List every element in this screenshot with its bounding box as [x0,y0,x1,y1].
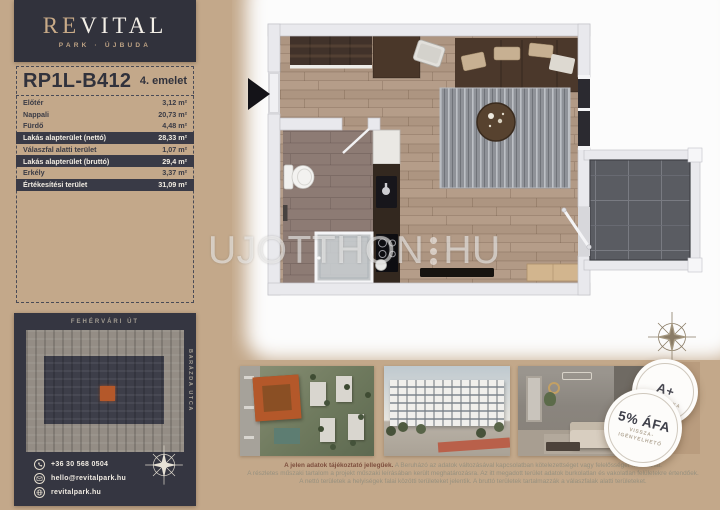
wardrobe [290,36,372,69]
area-table: Előtér3,12 m² Nappali20,73 m² Fürdő4,48 … [16,97,194,191]
interior-table [546,442,580,451]
street-label-right: BARÁZDA UTCA [187,349,193,412]
highlighted-unit [100,386,115,401]
unit-code: RP1L-B412 [23,70,131,93]
row-value: 1,07 m² [162,145,187,154]
row-value: 28,33 m² [158,133,187,142]
disclaimer-line-2: A részletes műszaki tartalom a projekt m… [238,470,708,478]
balcony-floor [590,160,690,260]
contact-email[interactable]: hello@revitalpark.hu [34,471,126,485]
brand-subtitle: PARK · ÚJBUDA [59,42,151,49]
aerial-building [310,382,326,406]
table-row: Előtér3,12 m² [16,97,194,109]
aerial-court [274,428,300,444]
disclaimer-lead: A jelen adatok tájékoztató jellegűek. [284,462,393,469]
row-label: Előtér [23,98,43,107]
table-row-highlight: Lakás alapterület (bruttó)29,4 m² [16,155,194,167]
table-row: Erkély3,37 m² [16,167,194,179]
row-value: 31,09 m² [158,180,187,189]
exterior-trees [398,422,408,432]
row-value: 20,73 m² [158,110,187,119]
floor-plan-area [232,0,720,360]
kitchen [373,130,400,283]
coffee-table [477,103,515,141]
mail-icon [34,473,45,484]
unit-header: RP1L-B412 4. emelet [16,67,194,96]
exterior-building [390,380,504,426]
balcony-window [578,75,590,150]
exterior-path [438,438,510,453]
table-row-highlight: Lakás alapterület (nettó)28,33 m² [16,132,194,144]
aerial-trees [310,374,316,380]
interior-lamp [562,372,592,380]
street-label-top: FEHÉRVÁRI ÚT [14,319,196,325]
table-row: Fürdő4,48 m² [16,120,194,132]
brand-name: REVITAL [43,14,168,37]
radiator [283,205,288,221]
row-label: Erkély [23,168,45,177]
compass-icon [646,309,698,365]
contact-phone[interactable]: +36 30 568 0504 [34,457,126,471]
tv-console [420,268,494,277]
brand-logo: REVITAL PARK · ÚJBUDA [14,0,196,62]
photo-exterior [384,366,510,456]
row-label: Értékesítési terület [23,180,87,189]
row-value: 3,12 m² [162,98,187,107]
interior-door [526,376,542,422]
contact-list: +36 30 568 0504 hello@revitalpark.hu rev… [34,457,126,499]
row-label: Válaszfal alatti terület [23,145,97,154]
shower [316,233,372,282]
toilet [284,165,314,189]
table-row: Válaszfal alatti terület1,07 m² [16,144,194,156]
aerial-building [336,376,352,402]
row-value: 29,4 m² [162,157,187,166]
website-url: revitalpark.hu [51,489,101,496]
table-row: Nappali20,73 m² [16,109,194,121]
aerial-building [320,418,335,442]
aerial-building [348,414,364,440]
phone-icon [34,459,45,470]
table-row-highlight: Értékesítési terület31,09 m² [16,179,194,191]
site-panel: FEHÉRVÁRI ÚT BARÁZDA UTCA +36 30 568 050… [14,313,196,506]
floor-plan [232,0,720,360]
brochure-page: UJOTTHON HU REVITAL PARK · ÚJBUDA RP1L-B… [0,0,720,510]
row-label: Nappali [23,110,49,119]
interior-plant [544,392,556,406]
row-value: 4,48 m² [162,121,187,130]
row-value: 3,37 m² [162,168,187,177]
contact-website[interactable]: revitalpark.hu [34,485,126,499]
aerial-highlighted-building [253,374,302,421]
row-label: Fürdő [23,121,43,130]
vat-badge: 5% ÁFA VISSZA- IGÉNYELHETŐ [604,389,682,467]
email-address: hello@revitalpark.hu [51,475,126,482]
row-label: Lakás alapterület (bruttó) [23,157,109,166]
row-label: Lakás alapterület (nettó) [23,133,106,142]
compass-icon-white [143,443,185,487]
photo-aerial [240,366,374,456]
sideboard [527,264,580,281]
globe-icon [34,487,45,498]
floor-label: 4. emelet [140,75,187,87]
disclaimer-line-3: A nettó területek a helyiségek falai köz… [238,478,708,486]
phone-number: +36 30 568 0504 [51,461,108,468]
